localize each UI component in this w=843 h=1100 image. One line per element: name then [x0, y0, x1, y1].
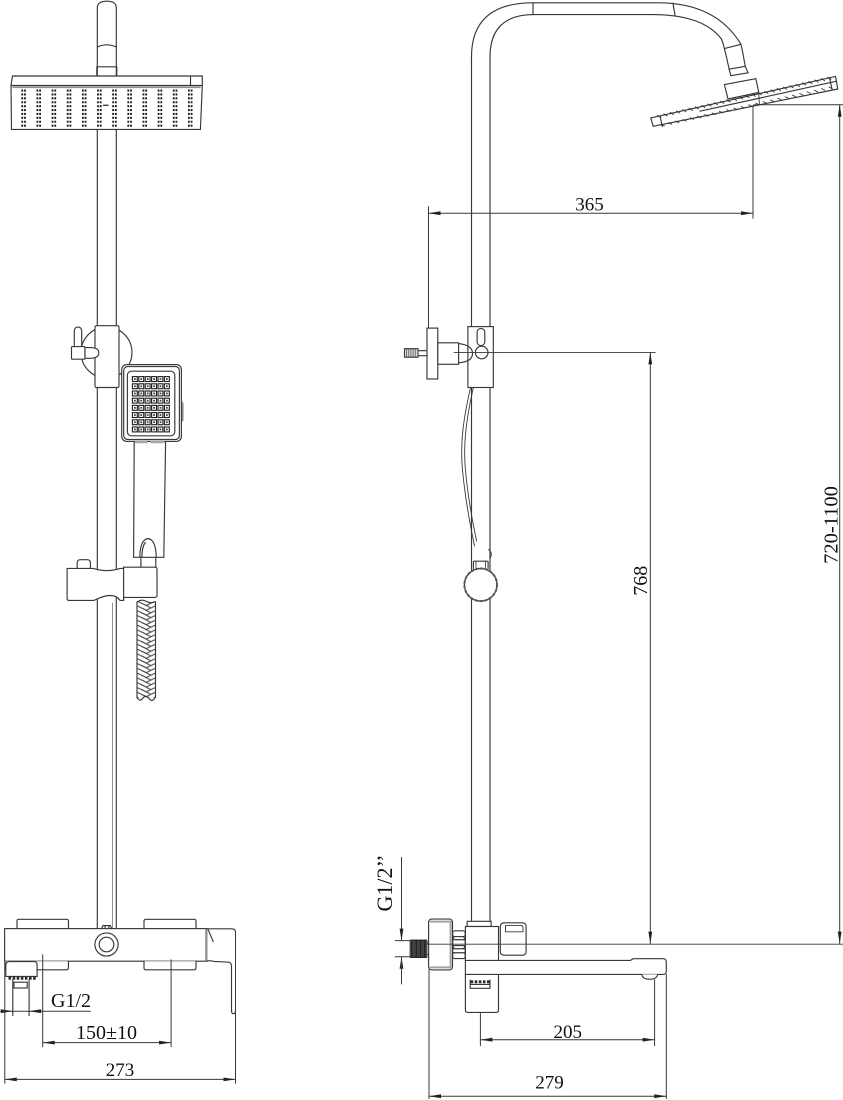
- svg-text:205: 205: [554, 1022, 583, 1043]
- svg-text:720-1100: 720-1100: [820, 486, 842, 564]
- svg-text:279: 279: [535, 1073, 564, 1094]
- svg-text:365: 365: [575, 195, 604, 216]
- svg-text:G1/2’’: G1/2’’: [372, 854, 397, 911]
- svg-text:150±10: 150±10: [76, 1022, 137, 1044]
- svg-text:768: 768: [630, 566, 652, 596]
- svg-text:G1/2: G1/2: [51, 990, 91, 1012]
- svg-text:273: 273: [106, 1060, 135, 1081]
